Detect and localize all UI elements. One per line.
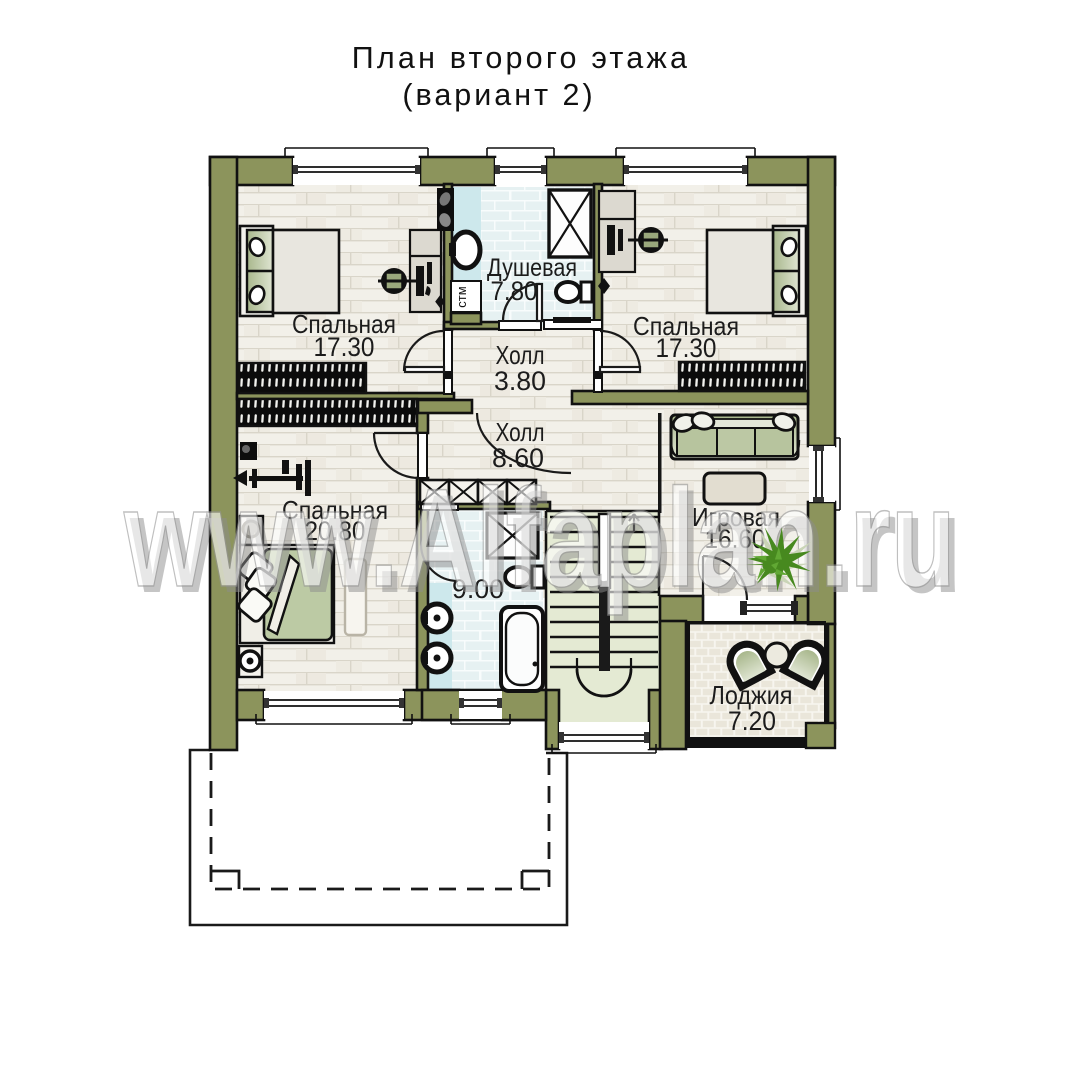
svg-text:(вариант 2): (вариант 2) [402,78,595,112]
svg-text:17.30: 17.30 [656,333,717,363]
svg-text:17.30: 17.30 [314,332,375,362]
svg-text:7.20: 7.20 [728,706,776,736]
svg-text:План второго этажа: План второго этажа [352,41,690,75]
svg-text:стм: стм [454,286,469,307]
svg-text:3.80: 3.80 [494,366,546,396]
svg-text:7.80: 7.80 [491,276,538,306]
svg-text:www.Alfaplan.ru: www.Alfaplan.ru [123,459,956,616]
